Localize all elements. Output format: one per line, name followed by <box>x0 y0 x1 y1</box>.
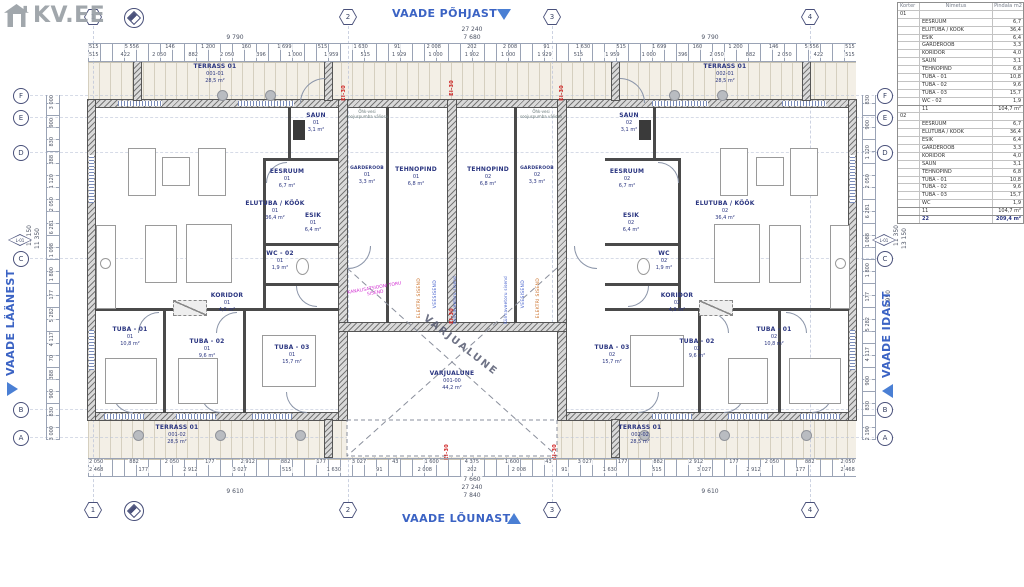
room-area-cell: 3,3 <box>993 145 1023 152</box>
terrace-post <box>217 90 228 101</box>
dim-value: 1 630 <box>602 467 618 473</box>
south-compass-icon <box>124 501 144 521</box>
furniture-kitchen-island <box>769 225 801 283</box>
dim-value: 900 <box>864 376 872 386</box>
terrace-stub-top-right2 <box>612 62 619 100</box>
kv-ee-logo: KV.EE <box>4 3 105 28</box>
area-table-row: ESIK 6,4 <box>898 136 1023 144</box>
room-name-cell: TEHNOPIND <box>920 66 993 73</box>
dim-value: 1 098 <box>48 243 56 257</box>
area-table-row: TEHNOPIND 6,8 <box>898 65 1023 73</box>
furniture-sink <box>100 258 111 269</box>
area-table-row: SAUN 3,1 <box>898 57 1023 65</box>
dim-value: 830 <box>48 407 56 417</box>
terrace-stub-top-right <box>803 62 810 100</box>
dim-value: 3 000 <box>48 426 56 440</box>
room-name-cell: ESIK <box>920 35 993 42</box>
interior-wall <box>605 243 681 246</box>
dim-value: 2 468 <box>88 467 104 473</box>
grid-bubble-row-b-left: B <box>13 402 29 418</box>
room-label-tehnopind-02: TEHNOPIND 02 6,8 m² <box>446 166 530 188</box>
room-area-cell: 3,1 <box>993 161 1023 168</box>
furniture-sofa <box>790 148 818 196</box>
dim-value: 2 468 <box>839 467 855 473</box>
room-label-terrass-001-01: TERRASS 01 001-01 28,5 m² <box>173 63 257 85</box>
window <box>782 101 826 106</box>
furniture-coffee-table <box>756 157 784 186</box>
furniture-bed <box>105 358 157 404</box>
room-name-cell: TUBA - 02 <box>920 82 993 89</box>
room-area-cell: 3,3 <box>993 42 1023 49</box>
furniture-dining-table <box>714 224 760 283</box>
terrace-stub-top-left <box>134 62 141 100</box>
dim-value: 3 000 <box>48 95 56 109</box>
room-area-cell: 1,9 <box>993 98 1023 105</box>
dim-value: 70 <box>48 355 56 361</box>
wall-east <box>849 100 856 420</box>
room-name-cell: TUBA - 01 <box>920 74 993 81</box>
area-table-row: GARDEROOB 3,3 <box>898 144 1023 152</box>
window <box>89 155 94 203</box>
dim-value: 882 <box>280 459 292 465</box>
view-arrow-north-icon <box>497 9 511 20</box>
interior-wall <box>698 311 701 413</box>
dim-value: 1 120 <box>864 145 872 159</box>
dim-bottom-sub: 7 660 <box>461 476 482 483</box>
dim-value: 900 <box>48 118 56 128</box>
dim-value: 422 <box>120 52 132 58</box>
room-area-cell: 9,6 <box>993 82 1023 89</box>
dim-value: 830 <box>48 137 56 147</box>
dim-col-right: 8309001 1202 0506 2811 0881 8001775 2824… <box>860 95 876 440</box>
grid-bubble-row-d-left: D <box>13 145 29 161</box>
area-table-row: SAUN 3,1 <box>898 160 1023 168</box>
view-title-north: VAADE PÕHJAST <box>392 7 497 20</box>
dim-value: 882 <box>804 459 816 465</box>
grid-bubble-col4-top: 4 <box>801 9 819 25</box>
window <box>850 330 855 370</box>
dim-value: 515 <box>281 467 293 473</box>
room-name-cell: SAUN <box>920 58 993 65</box>
dim-value: 177 <box>137 467 149 473</box>
area-table-row: KORIDOR 4,0 <box>898 49 1023 57</box>
room-area-cell: 15,7 <box>993 192 1023 199</box>
furniture-bed <box>178 358 218 404</box>
dim-value: 146 <box>768 44 780 50</box>
grid-bubble-row-c-right: C <box>877 251 893 267</box>
room-label-esik-01: ESIK 01 6,4 m² <box>271 212 355 234</box>
dim-value: 1 800 <box>48 267 56 281</box>
dim-value: 177 <box>795 467 807 473</box>
room-label-saun-02: SAUN 02 3,1 m² <box>587 112 671 134</box>
room-area-cell: 6,8 <box>993 169 1023 176</box>
grid-bubble-col3-top: 3 <box>543 9 561 25</box>
dim-value: 2 912 <box>182 467 198 473</box>
dim-right-total-2: 13 150 <box>901 228 908 249</box>
dim-value: 177 <box>617 459 629 465</box>
room-label-koridor-01: KORIDOR 01 4,0 m² <box>185 292 269 314</box>
dim-value: 2 008 <box>426 44 442 50</box>
dim-value: 1 200 <box>200 44 216 50</box>
dim-row-bottom-1: 2 0508822 0501772 9128821773 027431 6004… <box>88 459 856 465</box>
dim-value: 2 050 <box>151 52 167 58</box>
dim-value: 396 <box>677 52 689 58</box>
dim-value: 515 <box>88 44 100 50</box>
dim-value: 2 008 <box>417 467 433 473</box>
dim-value: 830 <box>864 95 872 105</box>
dim-value: 1 600 <box>504 459 520 465</box>
dim-value: 2 050 <box>164 459 180 465</box>
dim-value: 900 <box>48 389 56 399</box>
dim-value: 3 027 <box>696 467 712 473</box>
dim-value: 160 <box>241 44 253 50</box>
window <box>850 155 855 203</box>
window <box>800 414 840 419</box>
window <box>252 414 292 419</box>
dim-value: 4 375 <box>464 459 480 465</box>
dim-value: 1 630 <box>575 44 591 50</box>
dim-row-top-3: 5155 5561461 2001601 6995151 630912 0082… <box>88 44 856 50</box>
room-label-eesruum-01: EESRUUM 01 6,7 m² <box>245 168 329 190</box>
grid-line-row-f <box>30 95 894 96</box>
dim-bottom-side-right: 9 610 <box>699 488 720 495</box>
dim-value: 3 027 <box>232 467 248 473</box>
furniture-sofa <box>128 148 156 196</box>
dim-value: 2 912 <box>688 459 704 465</box>
dim-value: 202 <box>466 467 478 473</box>
dim-top-total: 27 240 <box>460 26 485 33</box>
room-area-cell: 4,0 <box>993 153 1023 160</box>
room-label-tuba3-01: TUBA - 03 01 15,7 m² <box>250 344 334 366</box>
grid-bubble-row-f-left: F <box>13 88 29 104</box>
grid-bubble-col2-bottom: 2 <box>339 502 357 518</box>
electric-entry-label: ELEKTRI SISEND <box>536 278 541 318</box>
carport-floor <box>347 330 557 457</box>
room-name-cell: SAUN <box>920 161 993 168</box>
grid-bubble-col2-top: 2 <box>339 9 357 25</box>
room-name-cell: ELUTUBA / KÖÖK <box>920 27 993 34</box>
dim-value: 1 929 <box>536 52 552 58</box>
dim-value: 515 <box>88 52 100 58</box>
dim-value: 900 <box>864 120 872 130</box>
room-label-terrass-002-01: TERRASS 01 002-01 28,5 m² <box>683 63 767 85</box>
grid-line-row-e <box>30 117 894 118</box>
dim-value: 177 <box>48 290 56 300</box>
room-label-elutuba-02: ELUTUBA / KÖÖK 02 36,4 m² <box>683 200 767 222</box>
room-area-cell: 1,9 <box>993 200 1023 207</box>
dim-value: 6 281 <box>48 220 56 234</box>
interior-wall <box>605 158 681 161</box>
dim-value: 91 <box>375 467 383 473</box>
dim-value: 1 000 <box>641 52 657 58</box>
area-table-subtotal-02: 11 104,7 m² <box>898 207 1023 215</box>
dim-value: 6 281 <box>864 204 872 218</box>
dim-value: 1 000 <box>427 52 443 58</box>
dim-left-total-1: 13 150 <box>26 225 33 246</box>
dim-right-total-1: 11 350 <box>893 225 900 246</box>
interior-wall <box>243 311 246 413</box>
dim-value: 2 050 <box>839 459 855 465</box>
grid-bubble-row-a-left: A <box>13 430 29 446</box>
room-area-cell: 4,0 <box>993 50 1023 57</box>
dim-value: 3 027 <box>351 459 367 465</box>
furniture-bed <box>728 358 768 404</box>
room-area-cell: 6,7 <box>993 121 1023 128</box>
dim-value: 2 050 <box>864 174 872 188</box>
terrace-post <box>801 430 812 441</box>
area-table-header-korter: Korter <box>898 3 920 10</box>
dim-value: 396 <box>255 52 267 58</box>
dim-value: 515 <box>317 44 329 50</box>
room-name-cell: GARDEROOB <box>920 42 993 49</box>
grid-bubble-row-d-right: D <box>877 145 893 161</box>
dim-value: 1 699 <box>276 44 292 50</box>
dim-value: 2 050 <box>708 52 724 58</box>
terrace-stub-top-left2 <box>325 62 332 100</box>
room-area-cell: 15,7 <box>993 90 1023 97</box>
room-name-cell: GARDEROOB <box>920 145 993 152</box>
fire-rating-label: EI-30 <box>449 80 455 96</box>
area-table-header: Korter Nimetus Pindala m2 <box>898 3 1023 10</box>
area-table-row: WC - 02 1,9 <box>898 97 1023 105</box>
interior-wall <box>514 107 517 323</box>
grid-bubble-col4-bottom: 4 <box>801 502 819 518</box>
terrace-stub-bottom-left <box>325 420 332 457</box>
area-table-row: TUBA - 01 10,8 <box>898 176 1023 184</box>
area-table: Korter Nimetus Pindala m2 01 EESRUUM 6,7… <box>897 2 1024 224</box>
view-title-west: VAADE LÄÄNEST <box>4 266 17 376</box>
view-arrow-west-icon <box>7 382 18 396</box>
dim-value: 177 <box>315 459 327 465</box>
dim-value: 1 120 <box>48 174 56 188</box>
dim-value: 882 <box>187 52 199 58</box>
dim-value: 5 282 <box>48 308 56 322</box>
view-title-east: VAADE IDAST <box>880 288 893 378</box>
dim-value: 2 050 <box>88 459 104 465</box>
wall-carport-right <box>558 100 566 420</box>
room-area-cell: 6,4 <box>993 35 1023 42</box>
dim-value: 177 <box>864 292 872 302</box>
dim-value: 515 <box>573 52 585 58</box>
dim-value: 1 000 <box>287 52 303 58</box>
dim-top-side-right: 9 790 <box>699 34 720 41</box>
dim-value: 515 <box>360 52 372 58</box>
dim-row-bottom-2: 2 4681772 9123 0275151 630912 0082022 00… <box>88 467 856 473</box>
room-label-koridor-02: KORIDOR 02 4,9 m² <box>635 292 719 314</box>
room-label-eesruum-02: EESRUUM 02 6,7 m² <box>585 168 669 190</box>
dim-value: 882 <box>652 459 664 465</box>
dim-left-total-2: 11 350 <box>34 228 41 249</box>
wall-west <box>88 100 95 420</box>
cold-water-label: Külmaveetoru sisend <box>503 276 508 324</box>
room-label-tuba2-02: TUBA - 02 02 9,6 m² <box>655 338 739 360</box>
area-table-row: ELUTUBA / KÖÖK 36,4 <box>898 26 1023 34</box>
dim-value: 91 <box>560 467 568 473</box>
room-area-cell: 3,1 <box>993 58 1023 65</box>
room-area-cell: 9,6 <box>993 184 1023 191</box>
dim-value: 43 <box>391 459 399 465</box>
dim-value: 5 556 <box>804 44 820 50</box>
dim-value: 830 <box>864 401 872 411</box>
dim-value: 1 088 <box>864 233 872 247</box>
area-table-header-nimetus: Nimetus <box>920 3 993 10</box>
dim-value: 177 <box>204 459 216 465</box>
north-compass-icon <box>124 8 144 28</box>
room-label-wc-01: WC - 02 01 1,9 m² <box>238 250 322 272</box>
dim-value: 1 902 <box>464 52 480 58</box>
room-label-terrass-001-02: TERRASS 01 001-02 28,5 m² <box>135 424 219 446</box>
grid-bubble-row-b-right: B <box>877 402 893 418</box>
dim-value: 1 200 <box>727 44 743 50</box>
dim-value: 515 <box>651 467 663 473</box>
room-name-cell: TEHNOPIND <box>920 169 993 176</box>
heat-pump-label: Õhk-vesi soojuspumba väliosa <box>346 110 388 120</box>
dim-value: 1 600 <box>423 459 439 465</box>
area-table-row: TUBA - 02 9,6 <box>898 81 1023 89</box>
dim-col-left: 3 0009008303881 1202 0506 2811 0981 8001… <box>44 95 60 440</box>
dim-value: 4 117 <box>864 347 872 361</box>
dim-value: 146 <box>164 44 176 50</box>
room-name-cell: TUBA - 02 <box>920 184 993 191</box>
dim-value: 5 282 <box>864 317 872 331</box>
wall-techblock-south <box>339 323 566 331</box>
dim-value: 2 050 <box>764 459 780 465</box>
dim-value: 882 <box>128 459 140 465</box>
dim-value: 1 959 <box>604 52 620 58</box>
view-arrow-east-icon <box>882 384 893 398</box>
dim-value: 2 912 <box>745 467 761 473</box>
dim-value: 3 027 <box>577 459 593 465</box>
dim-value: 515 <box>844 52 856 58</box>
dim-top-side-left: 9 790 <box>224 34 245 41</box>
grid-bubble-row-f-right: F <box>877 88 893 104</box>
fire-rating-label: EI-30 <box>449 308 455 324</box>
grid-bubble-col1-bottom: 1 <box>84 502 102 518</box>
furniture-coffee-table <box>162 157 190 186</box>
window <box>176 414 216 419</box>
room-label-esik-02: ESIK 02 6,4 m² <box>589 212 673 234</box>
grid-bubble-row-c-left: C <box>13 251 29 267</box>
logo-text: KV.EE <box>33 3 105 28</box>
interior-wall <box>263 243 339 246</box>
dim-value: 2 008 <box>511 467 527 473</box>
dim-value: 515 <box>615 44 627 50</box>
dim-value: 43 <box>544 459 552 465</box>
room-label-tuba3-02: TUBA - 03 02 15,7 m² <box>570 344 654 366</box>
room-label-varjualune: VARJUALUNE 001-00 44,2 m² <box>410 370 494 392</box>
area-table-row: ESIK 6,4 <box>898 34 1023 42</box>
window <box>652 414 692 419</box>
room-name-cell: KORIDOR <box>920 153 993 160</box>
grid-line-row-d <box>30 152 894 153</box>
dim-bottom-width: 7 840 <box>461 492 482 499</box>
dim-row-top-4: 5154222 0508822 0503961 0001 9595151 929… <box>88 52 856 58</box>
furniture-kitchen-island <box>145 225 177 283</box>
terrace-post <box>265 90 276 101</box>
area-table-row: TUBA - 01 10,8 <box>898 73 1023 81</box>
area-table-row: GARDEROOB 3,3 <box>898 41 1023 49</box>
room-area-cell: 36,4 <box>993 27 1023 34</box>
room-name-cell: EESRUUM <box>920 121 993 128</box>
furniture-sofa <box>720 148 748 196</box>
furniture-sofa <box>198 148 226 196</box>
room-area-cell: 36,4 <box>993 129 1023 136</box>
room-name-cell: WC <box>920 200 993 207</box>
dim-value: 1 929 <box>391 52 407 58</box>
dim-value: 2 050 <box>219 52 235 58</box>
dim-value: 1 800 <box>864 263 872 277</box>
dim-value: 1 699 <box>651 44 667 50</box>
furniture-dining-table <box>186 224 232 283</box>
dim-value: 91 <box>393 44 401 50</box>
water-entry-label: VEESISEND <box>521 280 526 308</box>
room-area-cell: 10,8 <box>993 74 1023 81</box>
furniture-bed <box>789 358 841 404</box>
room-name-cell: ESIK <box>920 137 993 144</box>
area-table-header-pindala: Pindala m2 <box>993 3 1023 10</box>
area-table-rows-02: EESRUUM 6,7 ELUTUBA / KÖÖK 36,4 ESIK 6,4 <box>898 120 1023 207</box>
dim-value: 4 117 <box>48 332 56 346</box>
room-name-cell: TUBA - 03 <box>920 90 993 97</box>
room-label-tuba1-01: TUBA - 01 01 10,8 m² <box>88 326 172 348</box>
dim-value: 882 <box>745 52 757 58</box>
area-table-row: TEHNOPIND 6,8 <box>898 168 1023 176</box>
dim-value: 422 <box>813 52 825 58</box>
grid-bubble-col3-bottom: 3 <box>543 502 561 518</box>
area-table-row: EESRUUM 6,7 <box>898 18 1023 26</box>
terrace-post <box>717 90 728 101</box>
heat-pump-label: Õhk-vesi soojuspumba väliosa <box>520 110 562 120</box>
wall-carport-left <box>339 100 347 420</box>
floorplan-canvas: ELUTUBA / KÖÖK 01 36,4 m² EESRUUM 01 6,7… <box>0 0 1024 587</box>
room-name-cell: ELUTUBA / KÖÖK <box>920 129 993 136</box>
dim-value: 1 630 <box>326 467 342 473</box>
room-area-cell: 10,8 <box>993 177 1023 184</box>
furniture-sink <box>835 258 846 269</box>
dim-value: 2 912 <box>240 459 256 465</box>
view-arrow-south-icon <box>507 513 521 524</box>
room-name-cell: WC - 02 <box>920 98 993 105</box>
dim-bottom-total: 27 240 <box>460 484 485 491</box>
view-title-south: VAADE LÕUNAST <box>402 512 511 525</box>
grid-bubble-row-e-left: E <box>13 110 29 126</box>
room-label-wc-02: WC 02 1,9 m² <box>622 250 706 272</box>
dim-value: 202 <box>466 44 478 50</box>
dim-value: 2 050 <box>48 197 56 211</box>
area-table-total: 22 209,4 m² <box>898 215 1023 223</box>
area-table-row: TUBA - 03 15,7 <box>898 89 1023 97</box>
room-name-cell: KORIDOR <box>920 50 993 57</box>
area-table-rows-01: EESRUUM 6,7 ELUTUBA / KÖÖK 36,4 ESIK 6,4 <box>898 18 1023 105</box>
room-name-cell: TUBA - 01 <box>920 177 993 184</box>
window <box>104 414 144 419</box>
house-icon <box>4 4 29 27</box>
grid-bubble-row-a-right: A <box>877 430 893 446</box>
fire-rating-label: EI-30 <box>341 85 347 101</box>
room-label-tuba1-02: TUBA - 01 02 10,8 m² <box>732 326 816 348</box>
dim-value: 177 <box>728 459 740 465</box>
room-label-terrass-002-02: TERRASS 01 002-02 28,5 m² <box>598 424 682 446</box>
dim-value: 1 630 <box>352 44 368 50</box>
dim-value: 1 959 <box>323 52 339 58</box>
grid-bubble-row-e-right: E <box>877 110 893 126</box>
room-area-cell: 6,4 <box>993 137 1023 144</box>
window <box>728 414 768 419</box>
area-table-row: ELUTUBA / KÖÖK 36,4 <box>898 128 1023 136</box>
window <box>118 101 162 106</box>
dim-value: 515 <box>844 44 856 50</box>
interior-wall <box>263 158 339 161</box>
